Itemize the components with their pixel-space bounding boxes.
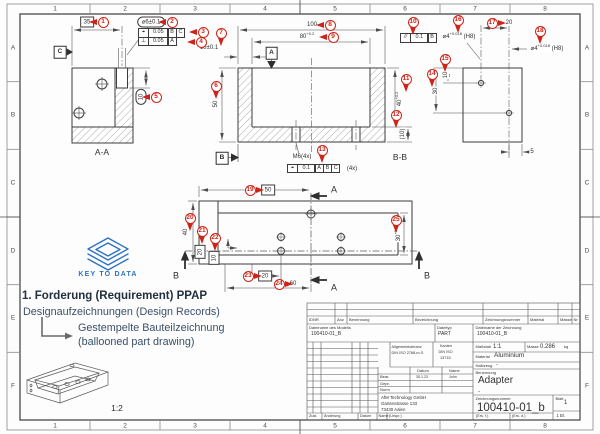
border-col-label: 5: [333, 422, 337, 429]
bear-name: John: [449, 376, 457, 380]
replaced-by-label: (Ers. d.): [512, 414, 526, 418]
dim-label: 50: [213, 100, 219, 109]
border-col-label: 6: [403, 422, 407, 429]
section-label-a-top: A: [330, 186, 338, 195]
rev-col-aenderung: Änderung: [324, 414, 340, 418]
parts-col-anz: Anz: [337, 318, 344, 322]
border-col-label: 8: [543, 422, 547, 429]
part-name: Adapter: [478, 376, 513, 387]
mass-value: 0.286: [540, 344, 555, 350]
balloon-24: 24: [274, 279, 285, 290]
datum-a: A: [265, 47, 278, 60]
iso-scale-label: 1:2: [110, 404, 124, 413]
sheet-label: Blatt: [556, 397, 564, 401]
border-col-label: 5: [333, 6, 337, 13]
signature-row-bear: Bear.: [380, 375, 389, 379]
border-col-label: 2: [123, 6, 127, 13]
border-row-label: D: [585, 247, 590, 254]
balloon-18: 18: [535, 26, 546, 37]
mass-unit: kg: [564, 345, 568, 349]
balloon-15: 15: [440, 54, 451, 65]
balloon-1: 1: [98, 17, 109, 28]
dim-label: 5: [529, 149, 534, 155]
balloon-12: 12: [391, 110, 402, 121]
balloon-2: 2: [167, 17, 178, 28]
balloon-22: 22: [210, 233, 221, 244]
gdt-datum-ref: B: [428, 33, 437, 43]
section-label-b-left: B: [172, 272, 180, 281]
dim-label: 30: [433, 87, 439, 96]
border-col-label: 8: [543, 6, 547, 13]
border-col-label: 3: [193, 422, 197, 429]
drawing-number-label: Zeichnungsnummer: [476, 397, 511, 401]
sheet-number: 1: [564, 400, 567, 406]
edges-norm-number: 13715: [440, 356, 451, 360]
border-row-label: D: [11, 247, 16, 254]
dim-label: ⌀4+0.018 (H8): [530, 46, 565, 52]
file-drawing-label: Dateiname der Zeichnung: [476, 326, 522, 330]
balloon-7: 7: [216, 28, 227, 39]
gdt-tolerance-value: 0.1: [297, 164, 315, 174]
parts-col-material: Material: [530, 318, 544, 322]
mass-label: Masse: [527, 345, 539, 349]
dim-label: M6(4x): [292, 154, 313, 160]
view-label-aa: A-A: [94, 148, 110, 157]
origin-label: (Urspr.): [389, 414, 402, 418]
balloon-5: 5: [151, 92, 162, 103]
signature-col-name: Name: [449, 369, 460, 373]
edges-label: Kanten: [440, 344, 452, 348]
edges-norm: DIN ISO: [439, 350, 453, 354]
border-col-label: 4: [263, 422, 267, 429]
border-col-label: 3: [193, 6, 197, 13]
parts-col-nr: Nr: [574, 318, 578, 322]
balloon-10: 10: [408, 17, 419, 28]
company-street: Gartenstrasse 133: [381, 402, 417, 407]
replaces-label: (Ers. f.): [476, 414, 488, 418]
material-value: Aluminium: [494, 353, 524, 360]
isometric-view: [27, 363, 108, 403]
drawing-sheet: { "border": { "cols": ["1","2","3","4","…: [0, 0, 600, 434]
balloon-11: 11: [401, 74, 412, 85]
border-row-label: B: [11, 112, 15, 119]
ppap-arrow: [42, 317, 73, 339]
signature-row-norm: Norm: [380, 388, 390, 392]
dim-label: 80+0.2: [299, 34, 316, 40]
parts-col-bezeichnung: Bezeichnung: [415, 318, 438, 322]
bear-date: 30.1.23: [416, 376, 428, 380]
balloon-8: 8: [325, 20, 336, 31]
border-col-label: 4: [263, 6, 267, 13]
ppap-stamped-drawing-line1: Gestempelte Bauteilzeichnung: [78, 322, 224, 334]
company-name: AfM Technology GmbH: [381, 396, 426, 401]
stock-value: -: [496, 363, 498, 368]
section-label-a-bottom: A: [330, 284, 338, 293]
border-col-label: 7: [473, 422, 477, 429]
parts-col-zeichnungsnummer: Zeichnungsnummer: [485, 318, 520, 322]
fcf-position-aa: ⌖ 0.05 B C ⊥ 0.05 A: [138, 28, 184, 46]
border-row-label: E: [585, 315, 589, 322]
file-model-label: Dateiname des Modells: [309, 326, 351, 330]
fcf-position-bb: ⌖ 0.1 A B C: [287, 164, 340, 174]
centerlines: [122, 25, 509, 283]
company-city: 73430 Aalen: [381, 408, 405, 413]
signature-row-gepr: Gepr.: [380, 382, 390, 386]
filetype-value: PART: [438, 332, 451, 337]
border-row-label: F: [11, 383, 15, 390]
balloon-23: 23: [243, 271, 254, 282]
balloon-21: 21: [197, 226, 208, 237]
fcf-parallelism: // 0.1 B: [400, 33, 436, 43]
border-col-label: 2: [123, 422, 127, 429]
dim-label: ⌀4+0.018 (H8): [442, 34, 477, 40]
balloon-9: 9: [328, 32, 339, 43]
datum-c: C: [54, 46, 67, 59]
scale-value: 1:1: [493, 344, 501, 350]
balloon-6: 6: [211, 81, 222, 92]
balloon-19: 19: [245, 185, 256, 196]
parts-col-masse: Masse: [560, 318, 572, 322]
key-to-data-logo-text: KEY TO DATA: [78, 271, 137, 278]
signature-col-date: Datum: [417, 369, 429, 373]
drawing-linework: [0, 0, 600, 434]
dim-label: (10): [400, 128, 406, 141]
dim-label: 10: [209, 251, 220, 265]
gdt-tolerance-value: 0.05: [148, 37, 168, 47]
balloon-16: 16: [453, 15, 464, 26]
rev-col-datum: Datum: [360, 414, 371, 418]
rev-col-name: Name: [379, 414, 389, 418]
general-tolerance-label: Allgemeintoleranz: [392, 345, 422, 349]
general-tolerance-norm: DIN ISO 2768-m-S: [392, 351, 424, 355]
border-col-label: 7: [473, 6, 477, 13]
balloon-20: 20: [185, 213, 196, 224]
gdt-datum-ref: C: [331, 164, 340, 174]
gdt-datum-ref: A: [168, 37, 177, 47]
border-row-label: A: [585, 44, 589, 51]
gdt-datum-ref: C: [176, 28, 185, 38]
ppap-design-records: Designaufzeichnungen (Design Records): [23, 306, 220, 318]
datum-b: B: [216, 152, 229, 165]
view-label-bb: B-B: [392, 153, 408, 162]
border-row-label: E: [11, 315, 15, 322]
material-label: Material: [476, 355, 490, 359]
dim-label: 40+0.2: [397, 91, 403, 108]
drawing-number: 100410-01_b: [477, 402, 545, 414]
border-col-label: 1: [53, 422, 57, 429]
dim-label: 20: [195, 245, 206, 259]
rev-col-zust: Zust.: [309, 414, 317, 418]
dim-label: (4x): [346, 166, 358, 172]
border-row-label: C: [11, 180, 16, 187]
parts-col-benennung: Benennung: [349, 318, 369, 322]
balloon-14: 14: [427, 69, 438, 80]
balloon-13: 13: [317, 145, 328, 156]
ppap-stamped-drawing-line2: (ballooned part drawing): [78, 336, 194, 348]
ppap-heading: 1. Forderung (Requirement) PPAP: [22, 290, 207, 302]
border-row-label: F: [585, 383, 589, 390]
parts-col-idnr: IDNR: [309, 318, 319, 322]
balloon-25: 25: [391, 215, 402, 226]
file-drawing-value: 100410-01_B: [477, 332, 507, 337]
stock-label: Halbzeug: [476, 364, 493, 368]
balloon-4: 4: [196, 37, 207, 48]
border-col-label: 1: [53, 6, 57, 13]
filetype-label: Dateityp: [437, 326, 452, 330]
border-row-label: B: [585, 112, 589, 119]
sheet-count: 1 Bl.: [557, 414, 565, 418]
dim-label: 20: [505, 20, 514, 26]
border-row-label: A: [11, 44, 15, 51]
dim-label: 10: [443, 71, 449, 80]
key-to-data-logo-icon: [88, 238, 128, 270]
part-name-2: -: [478, 389, 480, 395]
border-col-label: 6: [403, 6, 407, 13]
scale-label: Maßstab: [476, 345, 492, 349]
section-label-b-right: B: [423, 272, 431, 281]
file-model-value: 100410-01_B: [311, 332, 341, 337]
border-row-label: C: [585, 180, 590, 187]
balloon-17: 17: [487, 18, 498, 29]
